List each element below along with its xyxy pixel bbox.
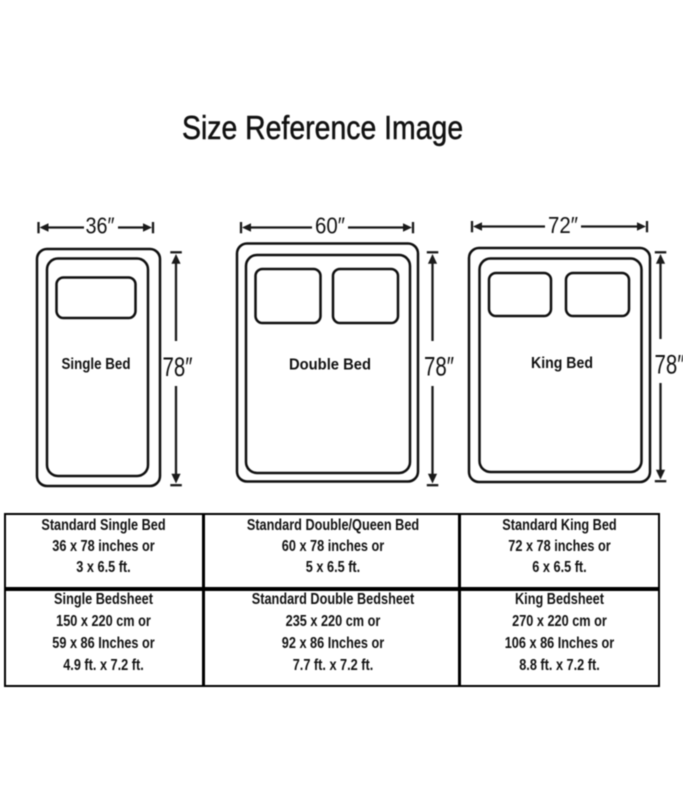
svg-text:78″: 78″ [163, 352, 193, 382]
svg-text:72″: 72″ [548, 212, 578, 238]
svg-text:36″: 36″ [86, 213, 115, 239]
svg-text:King Bed: King Bed [531, 355, 593, 372]
svg-text:Double Bed: Double Bed [289, 357, 371, 374]
svg-text:60″: 60″ [315, 213, 345, 239]
svg-text:78″: 78″ [655, 350, 683, 380]
svg-text:Single Bed: Single Bed [62, 356, 131, 373]
svg-text:78″: 78″ [424, 352, 454, 382]
